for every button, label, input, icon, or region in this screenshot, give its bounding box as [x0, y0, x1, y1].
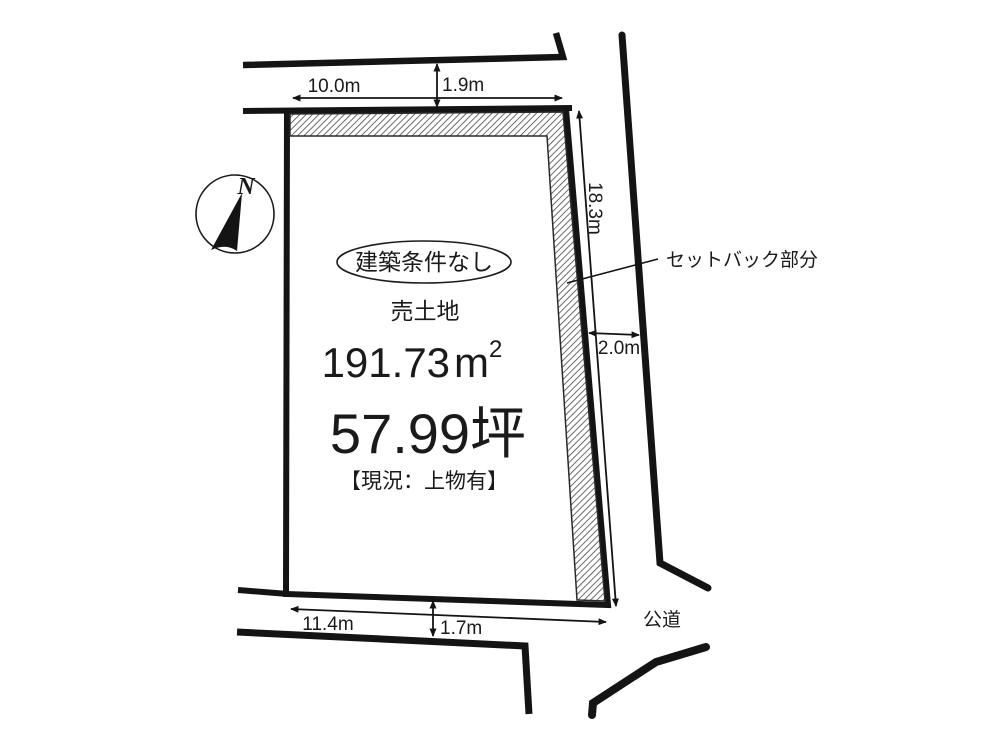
- right-road-width-label: 2.0m: [598, 338, 640, 359]
- right-depth-label: 18.3m: [584, 182, 605, 235]
- current-status-label: 【現況：上物有】: [340, 470, 508, 493]
- condition-badge-label: 建築条件なし: [355, 249, 493, 275]
- bottom-road-upper-edge: [238, 590, 288, 594]
- bottom-right-road-edge: [592, 647, 706, 715]
- top-width-label: 10.0m: [308, 76, 361, 97]
- plot-drawing: 10.0m 1.9m 18.3m 2.0m 11.4m 1.7m セットバック部…: [0, 0, 1000, 750]
- area-sqm-label: 191.73m2: [322, 336, 503, 386]
- bottom-road-width-label: 1.7m: [440, 618, 482, 639]
- compass-needle: [211, 193, 242, 251]
- area-sqm-value: 191.73: [322, 339, 450, 386]
- land-plot-diagram: 10.0m 1.9m 18.3m 2.0m 11.4m 1.7m セットバック部…: [0, 0, 1000, 750]
- north-compass-icon: N: [196, 174, 274, 253]
- top-road-upper-edge: [243, 33, 563, 65]
- area-sqm-unit: m: [454, 339, 489, 386]
- area-sqm-exponent: 2: [489, 336, 502, 363]
- property-type-label: 売土地: [391, 298, 460, 324]
- right-road-edge: [622, 35, 708, 588]
- area-tsubo-label: 57.99坪: [330, 402, 526, 465]
- compass-north-label: N: [236, 174, 256, 200]
- public-road-label: 公道: [643, 609, 681, 631]
- bottom-width-label: 11.4m: [302, 614, 353, 635]
- setback-label: セットバック部分: [666, 249, 818, 271]
- bottom-road-lower-edge: [237, 632, 529, 714]
- top-road-width-label: 1.9m: [442, 75, 484, 96]
